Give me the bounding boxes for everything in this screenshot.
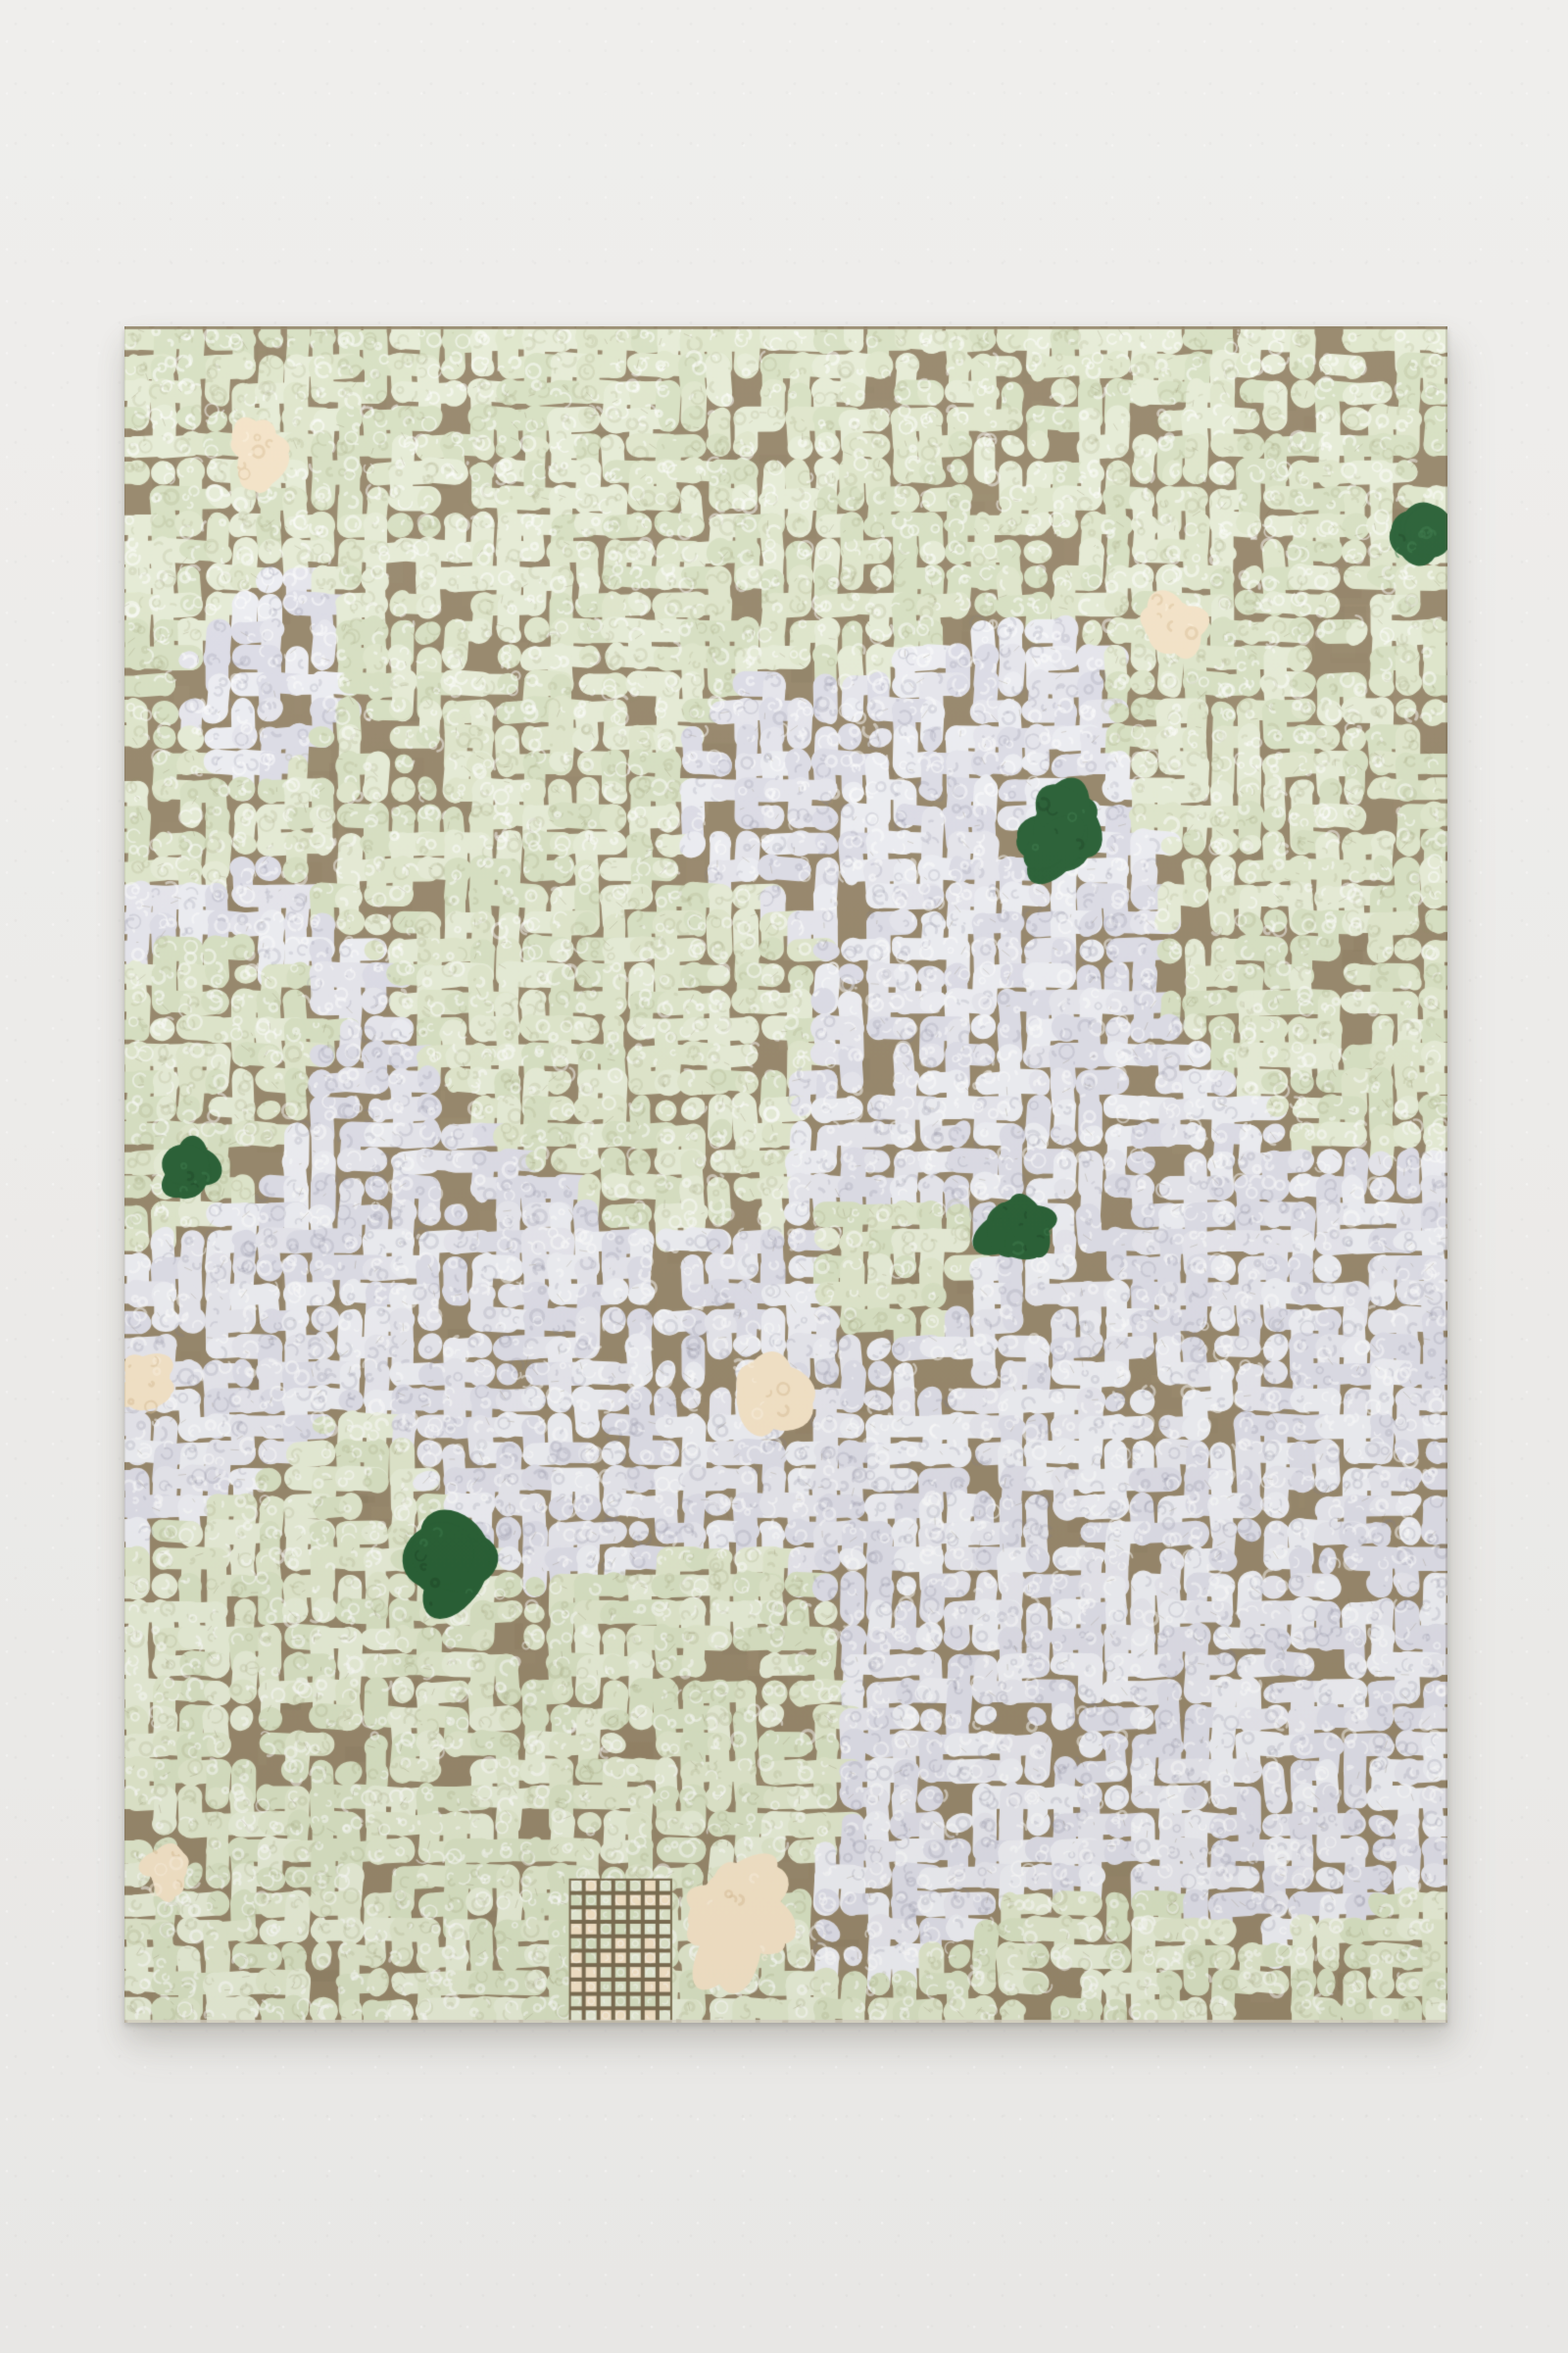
gallery-wall [0, 0, 1568, 2353]
artwork-canvas [124, 326, 1447, 2023]
artwork-frame [124, 326, 1447, 2023]
